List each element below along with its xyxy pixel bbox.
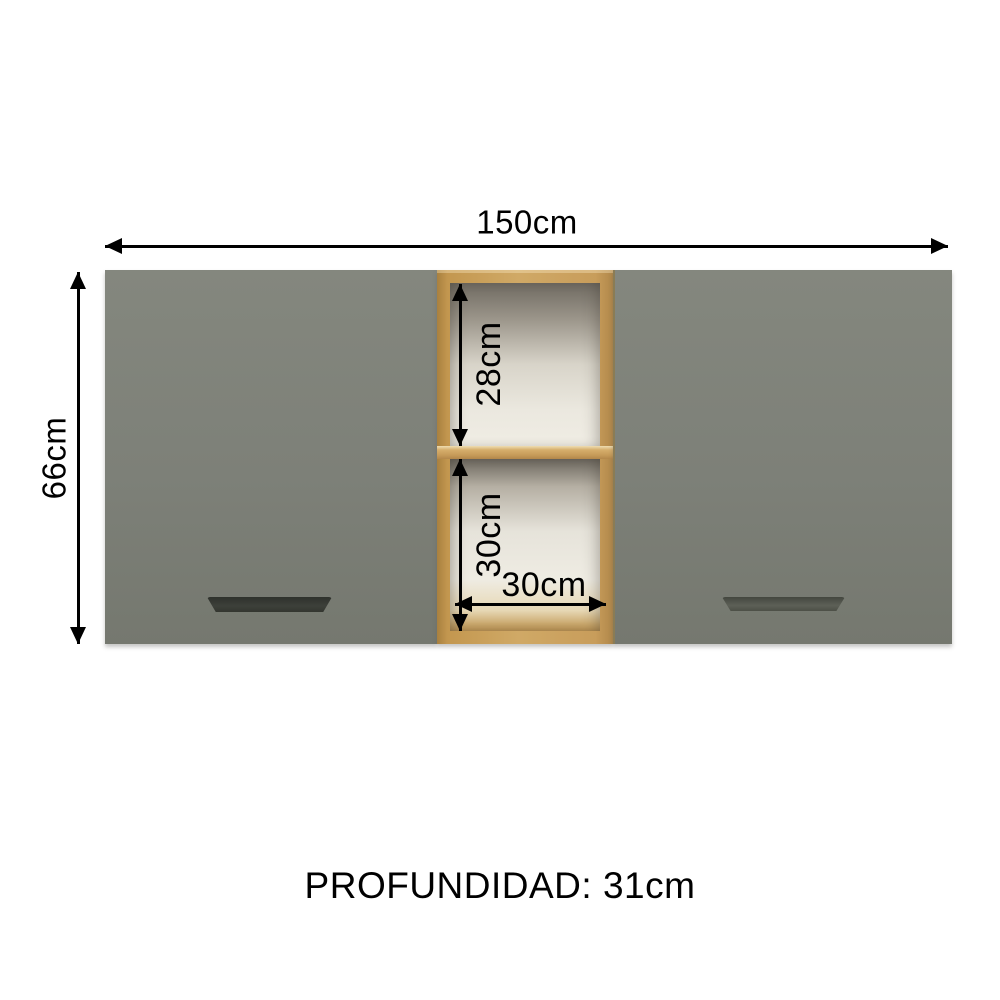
upper-compartment-height-label: 28cm bbox=[472, 321, 506, 406]
overall-height-label: 66cm bbox=[38, 417, 71, 500]
right-door bbox=[613, 270, 952, 644]
depth-note: PROFUNDIDAD: 31cm bbox=[305, 865, 696, 907]
overall-width-arrow bbox=[105, 245, 948, 248]
left-door-handle bbox=[207, 597, 332, 612]
compartment-width-label: 30cm bbox=[501, 568, 586, 602]
left-door bbox=[105, 270, 437, 644]
right-door-handle bbox=[722, 597, 845, 611]
overall-height-arrow bbox=[77, 272, 80, 644]
lower-compartment-height-label: 30cm bbox=[472, 492, 506, 577]
overall-width-label: 150cm bbox=[476, 206, 578, 239]
product-dimension-diagram: 150cm 66cm 28cm 30cm 30cm PROFUNDIDAD: 3… bbox=[0, 0, 1000, 1000]
upper-compartment-height-arrow bbox=[459, 284, 462, 446]
middle-shelf-board bbox=[437, 446, 613, 459]
